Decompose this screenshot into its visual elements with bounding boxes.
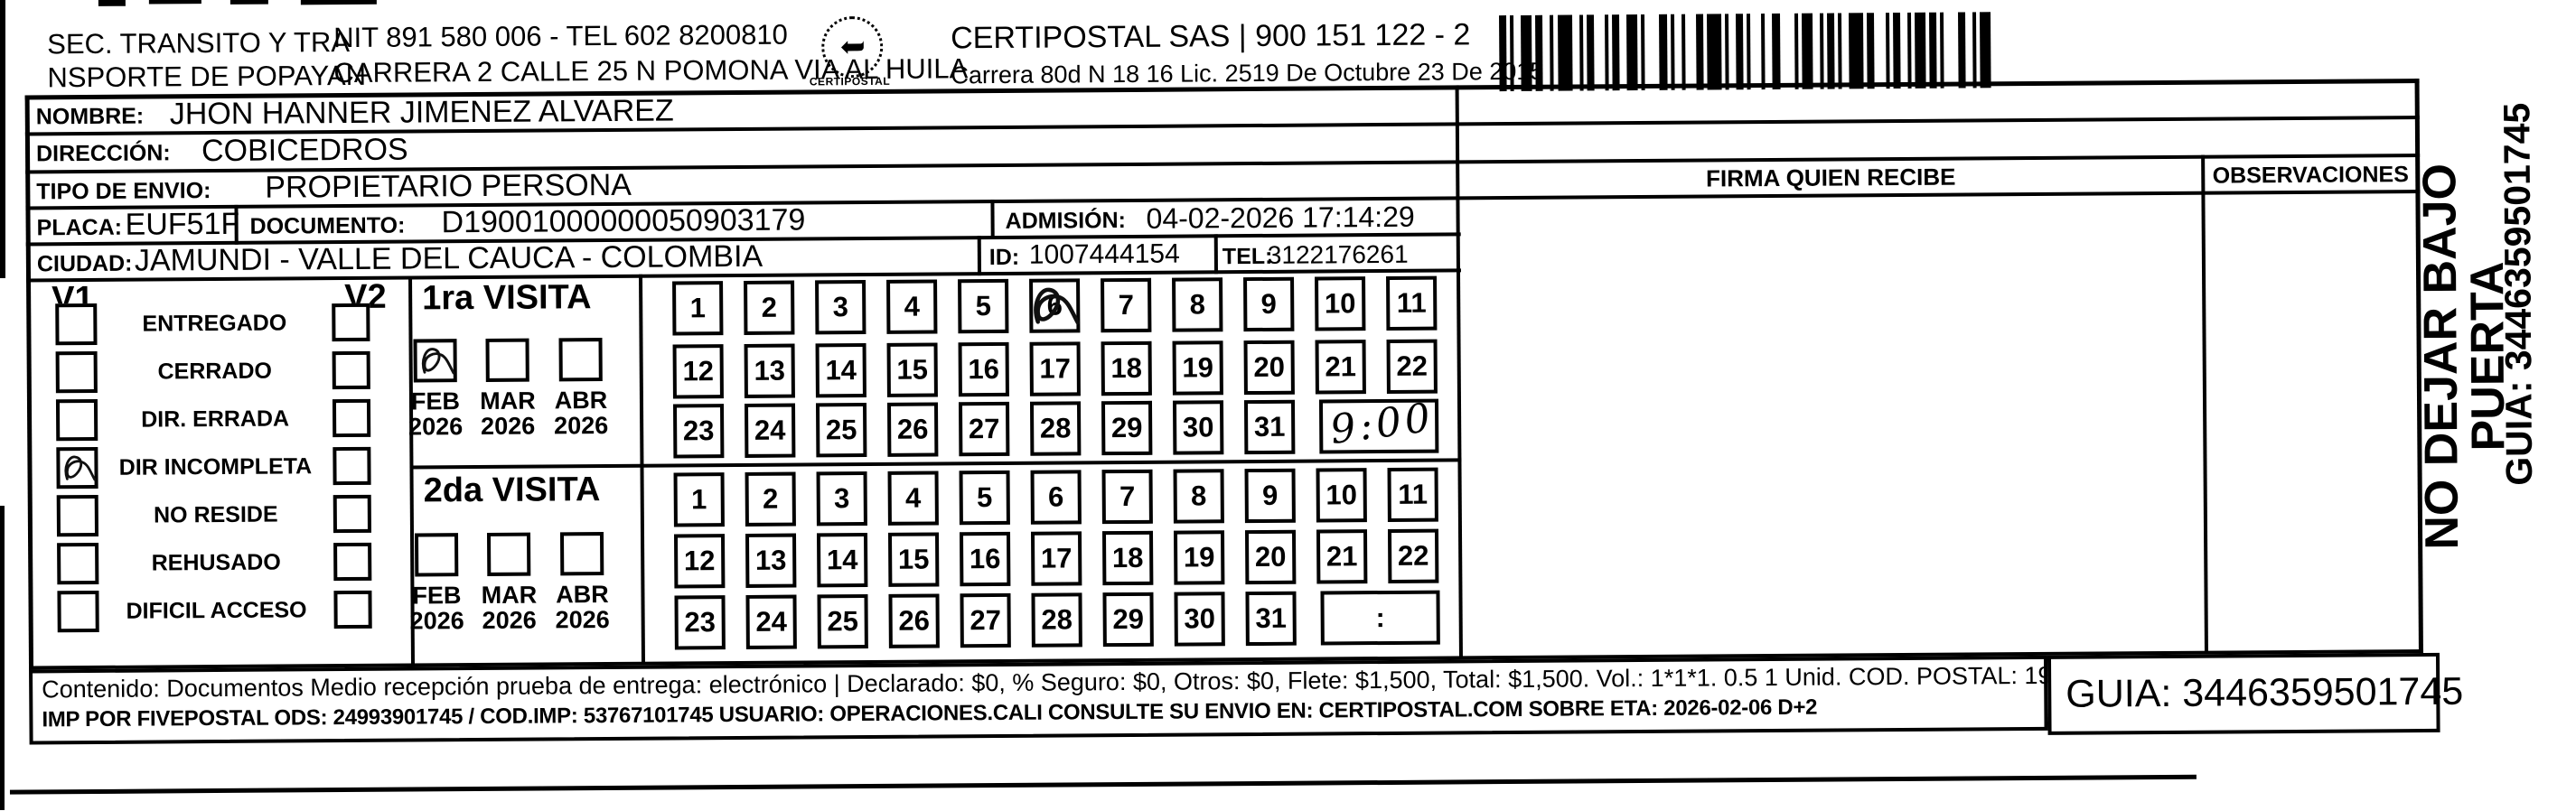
- sender-name: SEC. TRANSITO Y TRA NSPORTE DE POPAYAN: [47, 25, 366, 94]
- day-cell: 1: [674, 472, 725, 527]
- day-cell: 23: [673, 404, 724, 458]
- placa-label: PLACA:: [37, 216, 123, 240]
- checkbox-v1-entregado: [55, 303, 97, 345]
- admision-label: ADMISIÓN:: [1006, 209, 1127, 233]
- day-cell: 25: [817, 594, 867, 648]
- day-cell: 19: [1174, 530, 1224, 584]
- cut-off-top-text: 3446359501745: [1533, 0, 2229, 2]
- cut-off-fragment: [149, 0, 201, 5]
- day-cell: 29: [1102, 592, 1153, 647]
- month-label: ABR: [541, 583, 623, 608]
- month-checkbox-2da-visita-mar: [487, 533, 530, 576]
- day-cell: 1: [672, 281, 723, 335]
- day-cell: 2: [745, 472, 796, 527]
- status-option-label-rehusado: REHUSADO: [102, 551, 330, 575]
- month-label: FEB: [395, 389, 476, 415]
- barcode-bar: [1626, 14, 1638, 90]
- time-separator: :: [1321, 605, 1440, 633]
- documento-value: D19001000000050903179: [441, 204, 805, 238]
- visit-section-divider: [411, 458, 1461, 469]
- direccion-label: DIRECCIÓN:: [36, 141, 171, 165]
- barcode-space: [1594, 14, 1606, 90]
- tipo-envio-value: PROPIETARIO PERSONA: [265, 170, 632, 205]
- barcode: [1499, 12, 2000, 91]
- day-cell: 21: [1316, 529, 1367, 583]
- day-cell: 5: [960, 471, 1010, 525]
- checkbox-v2-dir-incompleta: [333, 447, 370, 485]
- visit-title-1ra-visita: 1ra VISITA: [422, 280, 592, 315]
- barcode-space: [1644, 14, 1660, 90]
- day-cell: 18: [1101, 341, 1152, 396]
- day-cell: 2: [744, 281, 794, 335]
- checkbox-v2-dir-errada: [333, 399, 370, 437]
- day-cell: 10: [1315, 276, 1365, 331]
- day-cell: 28: [1030, 401, 1081, 455]
- day-cell: 29: [1101, 401, 1152, 455]
- day-cell: 9: [1243, 277, 1294, 331]
- month-year: 2026: [540, 414, 622, 439]
- month-year: 2026: [395, 415, 476, 440]
- day-cell: 10: [1316, 468, 1367, 522]
- checkbox-v1-rehusado: [57, 543, 98, 584]
- status-option-label-no-reside: NO RESIDE: [102, 503, 330, 527]
- month-checkbox-1ra-visita-mar: [485, 339, 529, 382]
- day-cell: 17: [1031, 531, 1082, 585]
- day-cell: 8: [1172, 277, 1222, 331]
- month-year: 2026: [542, 608, 623, 633]
- day-cell: 12: [674, 534, 725, 588]
- handwritten-x-mark: [417, 342, 455, 378]
- day-cell: 27: [959, 402, 1009, 456]
- placa-value: EUF51F: [125, 209, 239, 242]
- day-cell: 14: [816, 343, 866, 397]
- column-divider-main: [1456, 85, 1463, 659]
- day-cell: 9: [1245, 469, 1296, 523]
- barcode-bar: [1915, 13, 1926, 89]
- direccion-value: COBICEDROS: [201, 135, 408, 168]
- cell-divider: [990, 200, 994, 239]
- sender-nit-tel: NIT 891 580 006 - TEL 602 8200810: [333, 21, 788, 53]
- footer-guia-value: GUIA: 3446359501745: [2065, 672, 2463, 715]
- side-guia-text: GUIA: 3446359501745: [2498, 96, 2538, 493]
- day-cell: 6: [1029, 278, 1080, 332]
- day-cell: 11: [1386, 276, 1437, 331]
- company-name: CERTIPOSTAL SAS | 900 151 122 - 2: [951, 19, 1470, 55]
- sender-name-line2: NSPORTE DE POPAYAN: [47, 59, 366, 94]
- status-option-label-cerrado: CERRADO: [101, 359, 329, 384]
- status-option-label-dificil-acceso: DIFICIL ACCESO: [103, 599, 331, 623]
- day-cell: 16: [959, 342, 1009, 396]
- cut-off-fragment: [301, 0, 377, 5]
- day-cell: 20: [1245, 530, 1296, 584]
- checkbox-v1-cerrado: [56, 351, 98, 393]
- paper-bottom-edge: [10, 775, 2197, 795]
- tel-value: 3122176261: [1268, 241, 1409, 268]
- ciudad-label: CIUDAD:: [37, 252, 133, 276]
- table-border-left: [25, 95, 33, 670]
- cell-divider: [978, 236, 981, 275]
- barcode-space: [1991, 12, 1999, 88]
- firma-header: FIRMA QUIEN RECIBE: [1471, 163, 2190, 193]
- day-cell: 26: [887, 402, 938, 456]
- month-year: 2026: [469, 608, 550, 633]
- id-value: 1007444154: [1029, 240, 1180, 270]
- day-cell: 8: [1174, 469, 1224, 523]
- barcode-space: [1780, 14, 1795, 89]
- checkbox-v2-dificil-acceso: [333, 591, 371, 629]
- day-cell: 22: [1388, 529, 1438, 583]
- barcode-bar: [1849, 13, 1864, 89]
- day-cell: 31: [1244, 400, 1295, 454]
- day-cell: 13: [745, 534, 796, 588]
- certipostal-stamp-icon: ➥: [821, 16, 883, 78]
- day-cell: 4: [888, 471, 939, 525]
- admision-value: 04-02-2026 17:14:29: [1146, 202, 1414, 235]
- checkbox-v1-dificil-acceso: [57, 591, 98, 632]
- cell-divider: [1214, 234, 1218, 274]
- month-year: 2026: [467, 414, 548, 439]
- day-cell: 15: [887, 342, 938, 396]
- day-cell: 24: [745, 404, 795, 458]
- day-cell: 24: [745, 595, 796, 649]
- checkbox-v1-dir-errada: [56, 399, 98, 441]
- cut-off-fragment: [230, 0, 268, 5]
- barcode-space: [1750, 14, 1762, 89]
- day-cell: 4: [886, 279, 937, 333]
- postal-arrow-icon: ➥: [839, 32, 866, 62]
- month-year: 2026: [397, 609, 478, 634]
- waybill-sheet: 3446359501745 SEC. TRANSITO Y TRA NSPORT…: [0, 0, 2576, 811]
- visit-title-2da-visita: 2da VISITA: [424, 472, 601, 508]
- barcode-space: [1685, 14, 1697, 90]
- observaciones-header: OBSERVACIONES: [2205, 163, 2416, 188]
- tel-label: TEL:: [1222, 245, 1273, 269]
- panel-divider-months: [639, 275, 645, 666]
- day-cell: 5: [958, 279, 1008, 333]
- month-checkbox-1ra-visita-feb: [413, 339, 456, 382]
- day-cell: 20: [1244, 340, 1295, 395]
- day-cell: 17: [1030, 341, 1081, 396]
- handwritten-x-mark: [1027, 280, 1080, 331]
- column-divider-observaciones: [2201, 155, 2208, 655]
- day-cell: 25: [816, 403, 866, 457]
- day-cell: 19: [1173, 340, 1223, 395]
- nombre-value: JHON HANNER JIMENEZ ALVAREZ: [170, 95, 674, 131]
- ciudad-value: JAMUNDI - VALLE DEL CAUCA - COLOMBIA: [135, 241, 763, 278]
- checkbox-v1-no-reside: [57, 495, 98, 536]
- day-cell: 12: [673, 344, 724, 398]
- cut-off-top-text-value: 3446359501745: [1533, 0, 2104, 2]
- month-checkbox-1ra-visita-abr: [558, 338, 602, 381]
- nombre-label: NOMBRE:: [36, 105, 145, 129]
- barcode-bar: [1558, 15, 1573, 91]
- day-cell: 26: [888, 593, 939, 648]
- day-cell: 13: [745, 344, 795, 398]
- tipo-envio-label: TIPO DE ENVIO:: [36, 179, 211, 204]
- day-cell: 21: [1316, 340, 1366, 394]
- day-cell: 30: [1173, 400, 1223, 454]
- documento-label: DOCUMENTO:: [250, 214, 406, 238]
- checkbox-v2-cerrado: [333, 351, 370, 389]
- cut-off-fragment: [98, 0, 126, 6]
- barcode-bar: [1802, 14, 1813, 89]
- day-cell: 3: [815, 280, 866, 334]
- month-checkbox-2da-visita-abr: [560, 532, 604, 575]
- company-address: Carrera 80d N 18 16 Lic. 2519 De Octubre…: [951, 59, 1543, 89]
- month-label: ABR: [540, 388, 622, 414]
- month-checkbox-2da-visita-feb: [415, 533, 458, 576]
- handwritten-x-mark: [60, 451, 96, 485]
- barcode-bar: [1707, 14, 1722, 89]
- day-cell: 28: [1031, 592, 1082, 647]
- checkbox-v2-no-reside: [333, 495, 371, 533]
- day-cell: 3: [817, 471, 867, 526]
- day-cell: 27: [960, 593, 1010, 648]
- status-option-label-entregado: ENTREGADO: [100, 312, 328, 336]
- day-cell: 30: [1174, 592, 1224, 646]
- month-label: FEB: [396, 583, 477, 609]
- barcode-space: [1944, 13, 1959, 89]
- month-label: MAR: [467, 388, 548, 414]
- status-option-label-dir-errada: DIR. ERRADA: [101, 407, 329, 432]
- status-option-label-dir-incompleta: DIR INCOMPLETA: [101, 455, 329, 480]
- day-cell: 6: [1031, 470, 1082, 524]
- day-cell: 16: [960, 532, 1010, 586]
- checkbox-v1-dir-incompleta: [56, 447, 98, 489]
- day-cell: 15: [888, 532, 939, 586]
- checkbox-v2-rehusado: [333, 543, 371, 581]
- day-cell: 7: [1101, 278, 1151, 332]
- id-label: ID:: [989, 246, 1020, 269]
- day-cell: 7: [1102, 470, 1153, 524]
- barcode-bar: [1980, 12, 1991, 88]
- day-cell: 22: [1387, 340, 1438, 394]
- barcode-bar: [1521, 15, 1532, 91]
- day-cell: 23: [674, 595, 725, 649]
- checkbox-v2-entregado: [332, 303, 370, 341]
- month-label: MAR: [468, 583, 549, 608]
- day-cell: 14: [817, 533, 867, 587]
- day-cell: 11: [1388, 468, 1438, 522]
- day-cell: 31: [1245, 592, 1296, 646]
- sender-name-line1: SEC. TRANSITO Y TRA: [47, 25, 366, 61]
- barcode-space: [1874, 13, 1886, 89]
- day-cell: 18: [1102, 531, 1153, 585]
